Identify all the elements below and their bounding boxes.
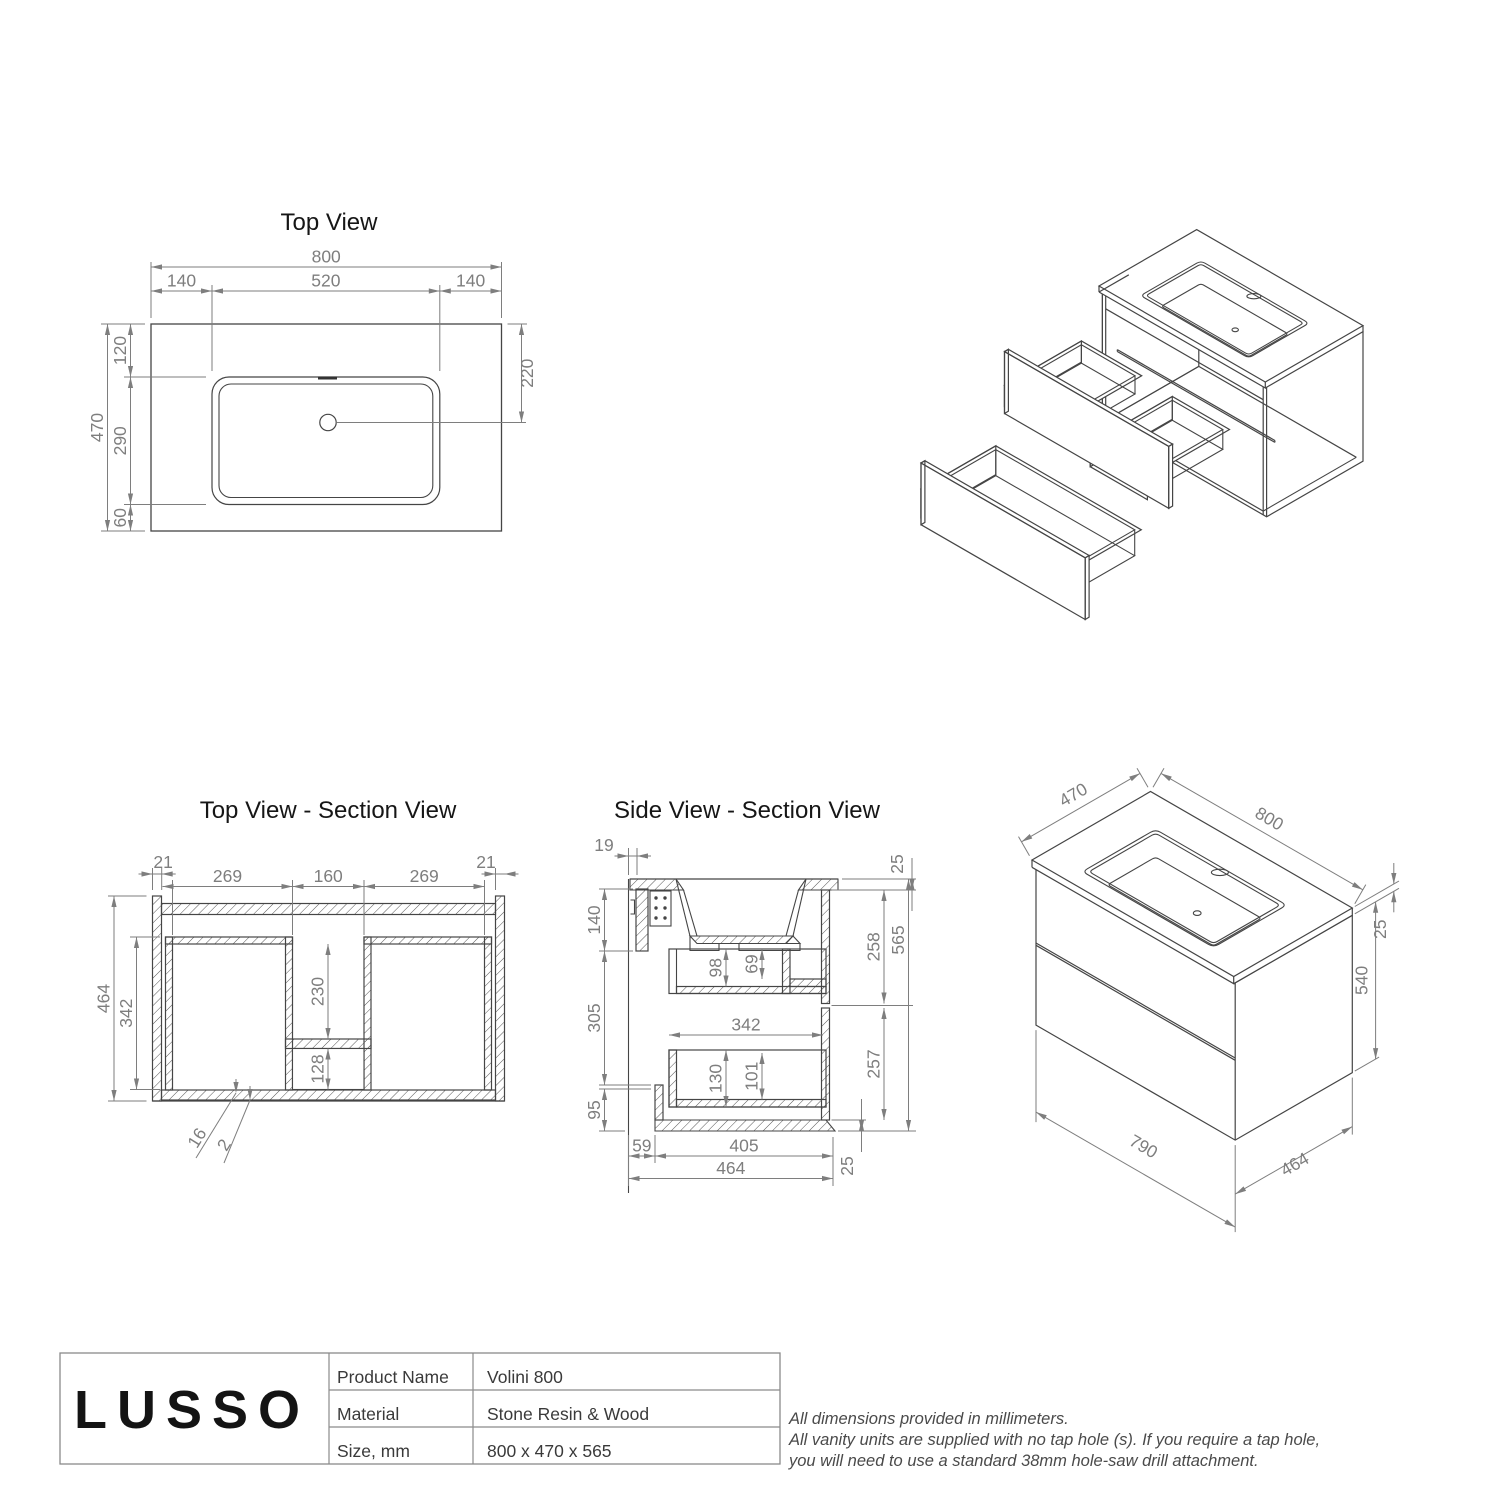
svg-text:25: 25 [1370,920,1390,939]
svg-text:you will need to use a standar: you will need to use a standard 38mm hol… [788,1452,1259,1470]
svg-text:59: 59 [632,1136,651,1156]
svg-text:290: 290 [110,426,130,455]
svg-text:120: 120 [110,336,130,365]
svg-text:60: 60 [110,508,130,528]
svg-text:128: 128 [308,1054,328,1083]
svg-text:269: 269 [410,866,439,886]
svg-text:800: 800 [312,247,341,267]
svg-text:Size, mm: Size, mm [337,1441,410,1461]
svg-text:342: 342 [116,999,136,1028]
svg-text:69: 69 [742,954,762,973]
svg-text:342: 342 [731,1015,760,1035]
svg-text:464: 464 [716,1158,745,1178]
svg-text:All vanity units are supplied: All vanity units are supplied with no ta… [788,1431,1320,1449]
svg-text:25: 25 [887,854,907,873]
svg-text:Stone Resin & Wood: Stone Resin & Wood [487,1404,649,1424]
svg-text:258: 258 [864,932,884,961]
svg-text:Side View - Section View: Side View - Section View [614,797,881,824]
svg-text:Material: Material [337,1404,399,1424]
svg-text:98: 98 [706,958,726,977]
svg-text:Top View - Section View: Top View - Section View [200,797,457,824]
svg-text:160: 160 [314,866,343,886]
svg-text:25: 25 [837,1156,857,1175]
svg-text:All dimensions provided in mil: All dimensions provided in millimeters. [788,1410,1069,1428]
svg-text:269: 269 [213,866,242,886]
svg-text:520: 520 [311,271,340,291]
svg-text:21: 21 [476,852,495,872]
svg-text:220: 220 [517,358,537,387]
svg-text:140: 140 [456,271,485,291]
svg-text:405: 405 [729,1136,758,1156]
svg-text:21: 21 [153,852,172,872]
svg-text:Top View: Top View [281,209,379,236]
svg-text:130: 130 [706,1064,726,1093]
svg-text:101: 101 [742,1062,762,1091]
svg-text:470: 470 [87,413,107,442]
svg-text:305: 305 [584,1003,604,1032]
svg-text:565: 565 [888,925,908,954]
svg-text:Volini 800: Volini 800 [487,1367,563,1387]
svg-text:Product Name: Product Name [337,1367,449,1387]
svg-text:LUSSO: LUSSO [74,1380,310,1440]
svg-text:140: 140 [584,905,604,934]
svg-text:800 x 470 x 565: 800 x 470 x 565 [487,1441,612,1461]
svg-text:464: 464 [94,984,114,1013]
svg-text:95: 95 [584,1100,604,1119]
svg-text:19: 19 [594,835,613,855]
svg-text:230: 230 [308,977,328,1006]
svg-text:140: 140 [167,271,196,291]
svg-text:540: 540 [1352,966,1372,995]
svg-text:257: 257 [864,1049,884,1078]
